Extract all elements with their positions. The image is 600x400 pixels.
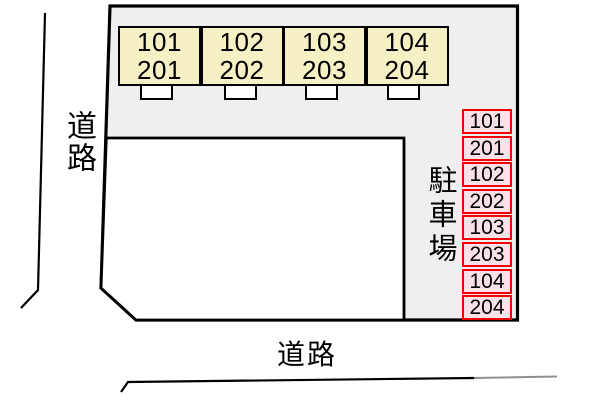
parking-space-box: 202: [462, 189, 512, 214]
parking-lot-label: 駐車場: [419, 165, 461, 267]
parking-space-number: 102: [469, 164, 504, 185]
unit-box-103-203: 103 203: [283, 26, 366, 86]
unit-number: 201: [137, 56, 182, 84]
parking-space-box: 104: [462, 269, 512, 294]
unit-entrance-tab: [224, 84, 257, 100]
parking-space-number: 103: [469, 217, 504, 238]
parking-space-box: 203: [462, 242, 512, 267]
road-edge-bottom-faded: [474, 377, 557, 379]
road-label-bottom: 道路: [262, 333, 352, 373]
road-edge-bottom: [121, 378, 474, 392]
parking-space-box: 201: [462, 136, 512, 161]
parking-space-number: 203: [469, 244, 504, 265]
unit-box-101-201: 101 201: [118, 26, 201, 86]
parking-space-number: 204: [469, 297, 504, 318]
road-label-left: 道路: [56, 110, 100, 174]
unit-number: 102: [220, 28, 265, 56]
unit-entrance-tab: [387, 84, 420, 100]
parking-space-box: 101: [462, 109, 512, 134]
unit-number: 203: [302, 56, 347, 84]
building-footprint: [101, 138, 404, 320]
unit-number: 103: [302, 28, 347, 56]
parking-space-box: 204: [462, 295, 512, 320]
parking-space-box: 103: [462, 215, 512, 240]
unit-number: 204: [385, 56, 430, 84]
road-edge-left: [21, 13, 45, 308]
unit-entrance-tab: [140, 84, 173, 100]
unit-number: 101: [137, 28, 182, 56]
parking-space-number: 202: [469, 191, 504, 212]
unit-box-104-204: 104 204: [366, 26, 449, 86]
unit-box-102-202: 102 202: [201, 26, 284, 86]
unit-number: 104: [385, 28, 430, 56]
parking-space-number: 104: [469, 271, 504, 292]
site-plan: 101 201 102 202 103 203 104 204 101 201 …: [0, 0, 600, 400]
parking-space-box: 102: [462, 162, 512, 187]
parking-space-number: 101: [469, 111, 504, 132]
parking-space-number: 201: [469, 138, 504, 159]
unit-number: 202: [220, 56, 265, 84]
unit-entrance-tab: [305, 84, 338, 100]
